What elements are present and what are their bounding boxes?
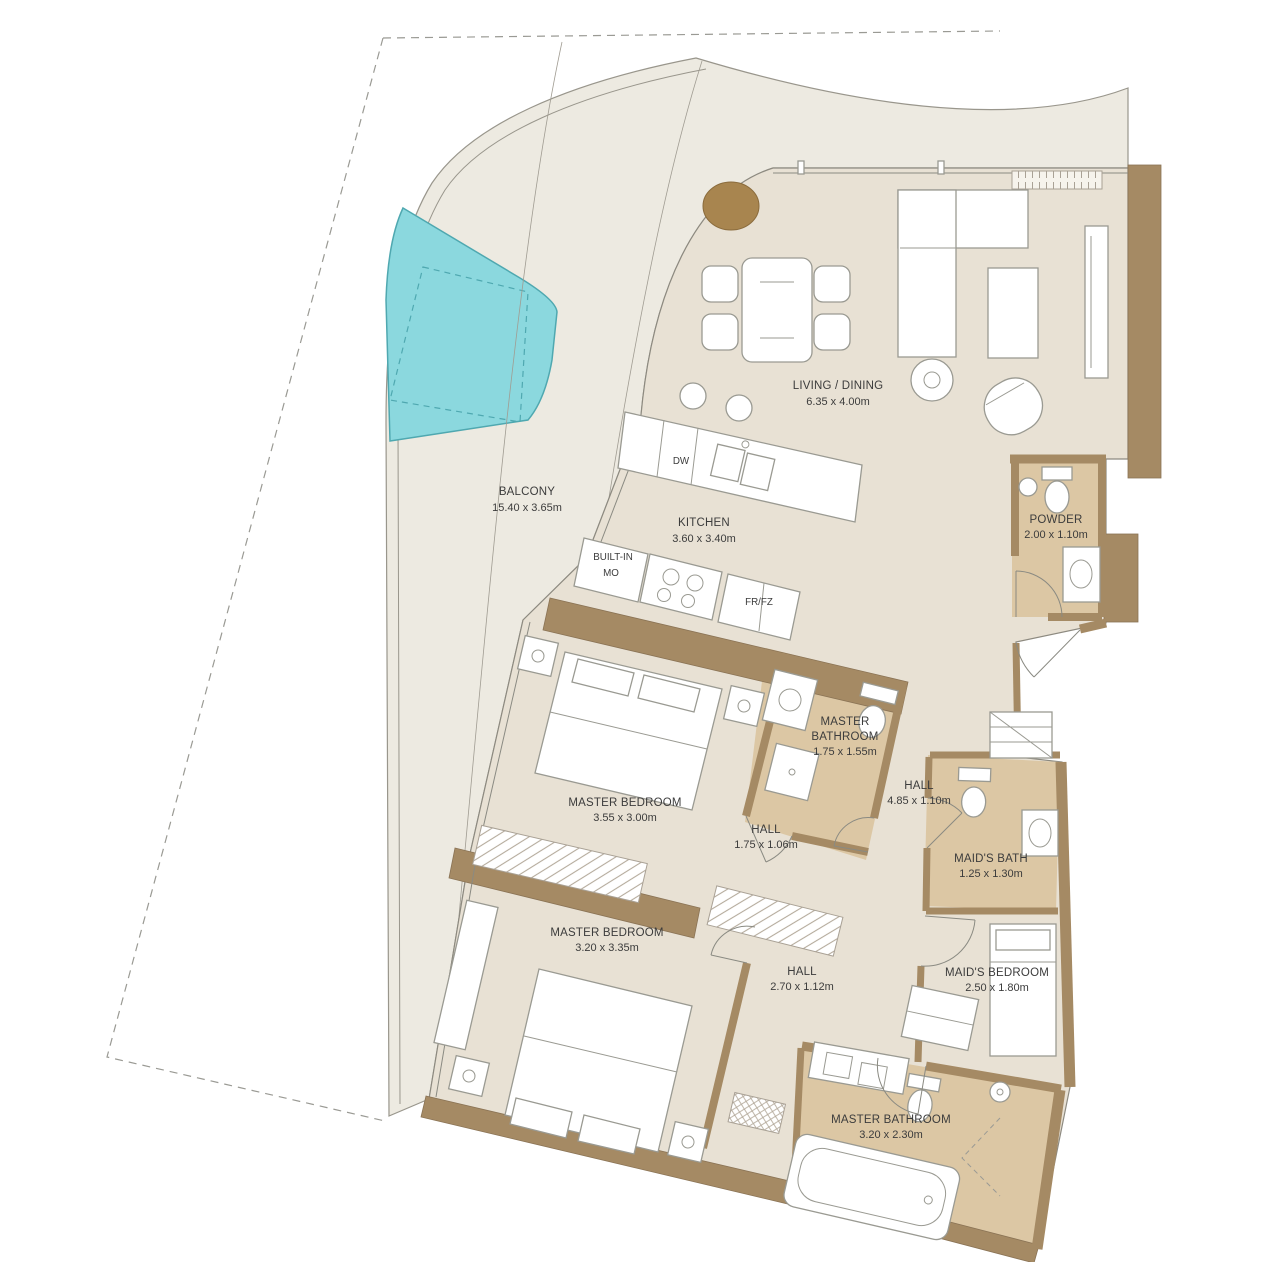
room-label-hall-1: HALL	[904, 780, 934, 792]
wall-entry-stub	[1080, 623, 1106, 629]
side-table	[988, 268, 1038, 358]
room-dims-balcony: 15.40 x 3.65m	[492, 502, 562, 514]
linen-closet	[990, 712, 1052, 758]
nightstand	[518, 636, 559, 677]
window-mullion-2	[938, 161, 944, 174]
sofa-chaise	[898, 190, 956, 357]
bar-stool	[726, 395, 752, 421]
room-label-balcony: BALCONY	[499, 486, 555, 498]
room-dims-master-bath-2: 3.20 x 2.30m	[859, 1129, 923, 1141]
toilet-tank	[1042, 467, 1072, 480]
room-label-master-bath-1-line2: BATHROOM	[811, 731, 878, 743]
boundary-line-top	[383, 31, 1000, 38]
room-dims-powder: 2.00 x 1.10m	[1024, 529, 1088, 541]
room-label-living-dining: LIVING / DINING	[793, 380, 884, 392]
room-dims-hall-1: 4.85 x 1.10m	[887, 795, 951, 807]
planter-icon	[703, 182, 759, 230]
wall-maids-bath-left-lower	[926, 848, 927, 911]
nightstand	[668, 1122, 709, 1163]
dining-table	[742, 258, 812, 362]
top-closet-strip	[1012, 171, 1102, 189]
room-label-hall-3: HALL	[787, 966, 817, 978]
coffee-table	[911, 359, 953, 401]
room-label-maids-bedroom: MAID'S BEDROOM	[945, 967, 1049, 979]
appliance-label-frfz: FR/FZ	[745, 597, 773, 608]
nightstand	[449, 1056, 490, 1097]
room-label-master-bedroom-1: MASTER BEDROOM	[568, 797, 681, 809]
dining-chair	[702, 314, 738, 350]
nightstand	[724, 686, 765, 727]
appliance-label-dw: DW	[673, 456, 690, 467]
room-dims-master-bedroom-2: 3.20 x 3.35m	[575, 942, 639, 954]
dining-chair	[814, 266, 850, 302]
dining-chair	[814, 314, 850, 350]
wall-block-top-right	[1128, 165, 1161, 478]
room-dims-living-dining: 6.35 x 4.00m	[806, 396, 870, 408]
bar-stool	[680, 383, 706, 409]
appliance-label-mo: MO	[603, 568, 619, 579]
vanity	[1063, 547, 1100, 602]
room-dims-master-bedroom-1: 3.55 x 3.00m	[593, 812, 657, 824]
room-dims-maids-bedroom: 2.50 x 1.80m	[965, 982, 1029, 994]
room-dims-master-bath-1: 1.75 x 1.55m	[813, 746, 877, 758]
room-label-master-bath-2: MASTER BATHROOM	[831, 1114, 951, 1126]
floorplan-canvas: BALCONY 15.40 x 3.65m LIVING / DINING 6.…	[0, 0, 1286, 1262]
room-dims-kitchen: 3.60 x 3.40m	[672, 533, 736, 545]
window-mullion-1	[798, 161, 804, 174]
room-label-master-bath-1-line1: MASTER	[820, 716, 869, 728]
toilet-bowl	[1045, 481, 1069, 513]
room-dims-hall-3: 2.70 x 1.12m	[770, 981, 834, 993]
room-label-hall-2: HALL	[751, 824, 781, 836]
floorplan-svg: BALCONY 15.40 x 3.65m LIVING / DINING 6.…	[0, 0, 1286, 1262]
room-label-maids-bath: MAID'S BATH	[954, 853, 1028, 865]
tv-console	[1085, 226, 1108, 378]
dining-chair	[702, 266, 738, 302]
room-dims-hall-2: 1.75 x 1.06m	[734, 839, 798, 851]
shower-head	[990, 1082, 1010, 1102]
pillow	[996, 930, 1050, 950]
sink	[1022, 810, 1058, 856]
appliance-label-built-in: BUILT-IN	[593, 552, 633, 563]
room-dims-maids-bath: 1.25 x 1.30m	[959, 868, 1023, 880]
boundary-line-left	[107, 38, 385, 1121]
room-label-kitchen: KITCHEN	[678, 517, 730, 529]
room-label-powder: POWDER	[1030, 514, 1083, 526]
corner-basin	[1019, 478, 1037, 496]
room-label-master-bedroom-2: MASTER BEDROOM	[550, 927, 663, 939]
wall-chase-powder	[1104, 534, 1138, 622]
